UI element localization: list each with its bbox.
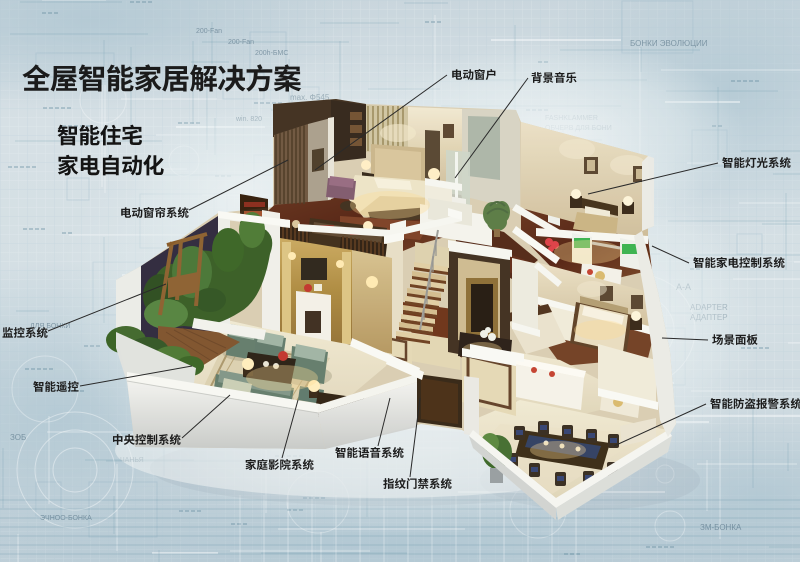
svg-text:200-Fan: 200-Fan	[228, 39, 254, 46]
svg-text:ЗМ-БОНКА: ЗМ-БОНКА	[700, 523, 742, 532]
svg-text:БОНКИ ЭВОЛЮЦИИ: БОНКИ ЭВОЛЮЦИИ	[630, 39, 708, 48]
svg-text:200-Fan: 200-Fan	[196, 28, 222, 35]
svg-text:ЭЧНОО-БОНКА: ЭЧНОО-БОНКА	[40, 515, 92, 522]
svg-text:200h-БМС: 200h-БМС	[255, 50, 288, 57]
svg-text:ЗОБ: ЗОБ	[10, 433, 26, 442]
